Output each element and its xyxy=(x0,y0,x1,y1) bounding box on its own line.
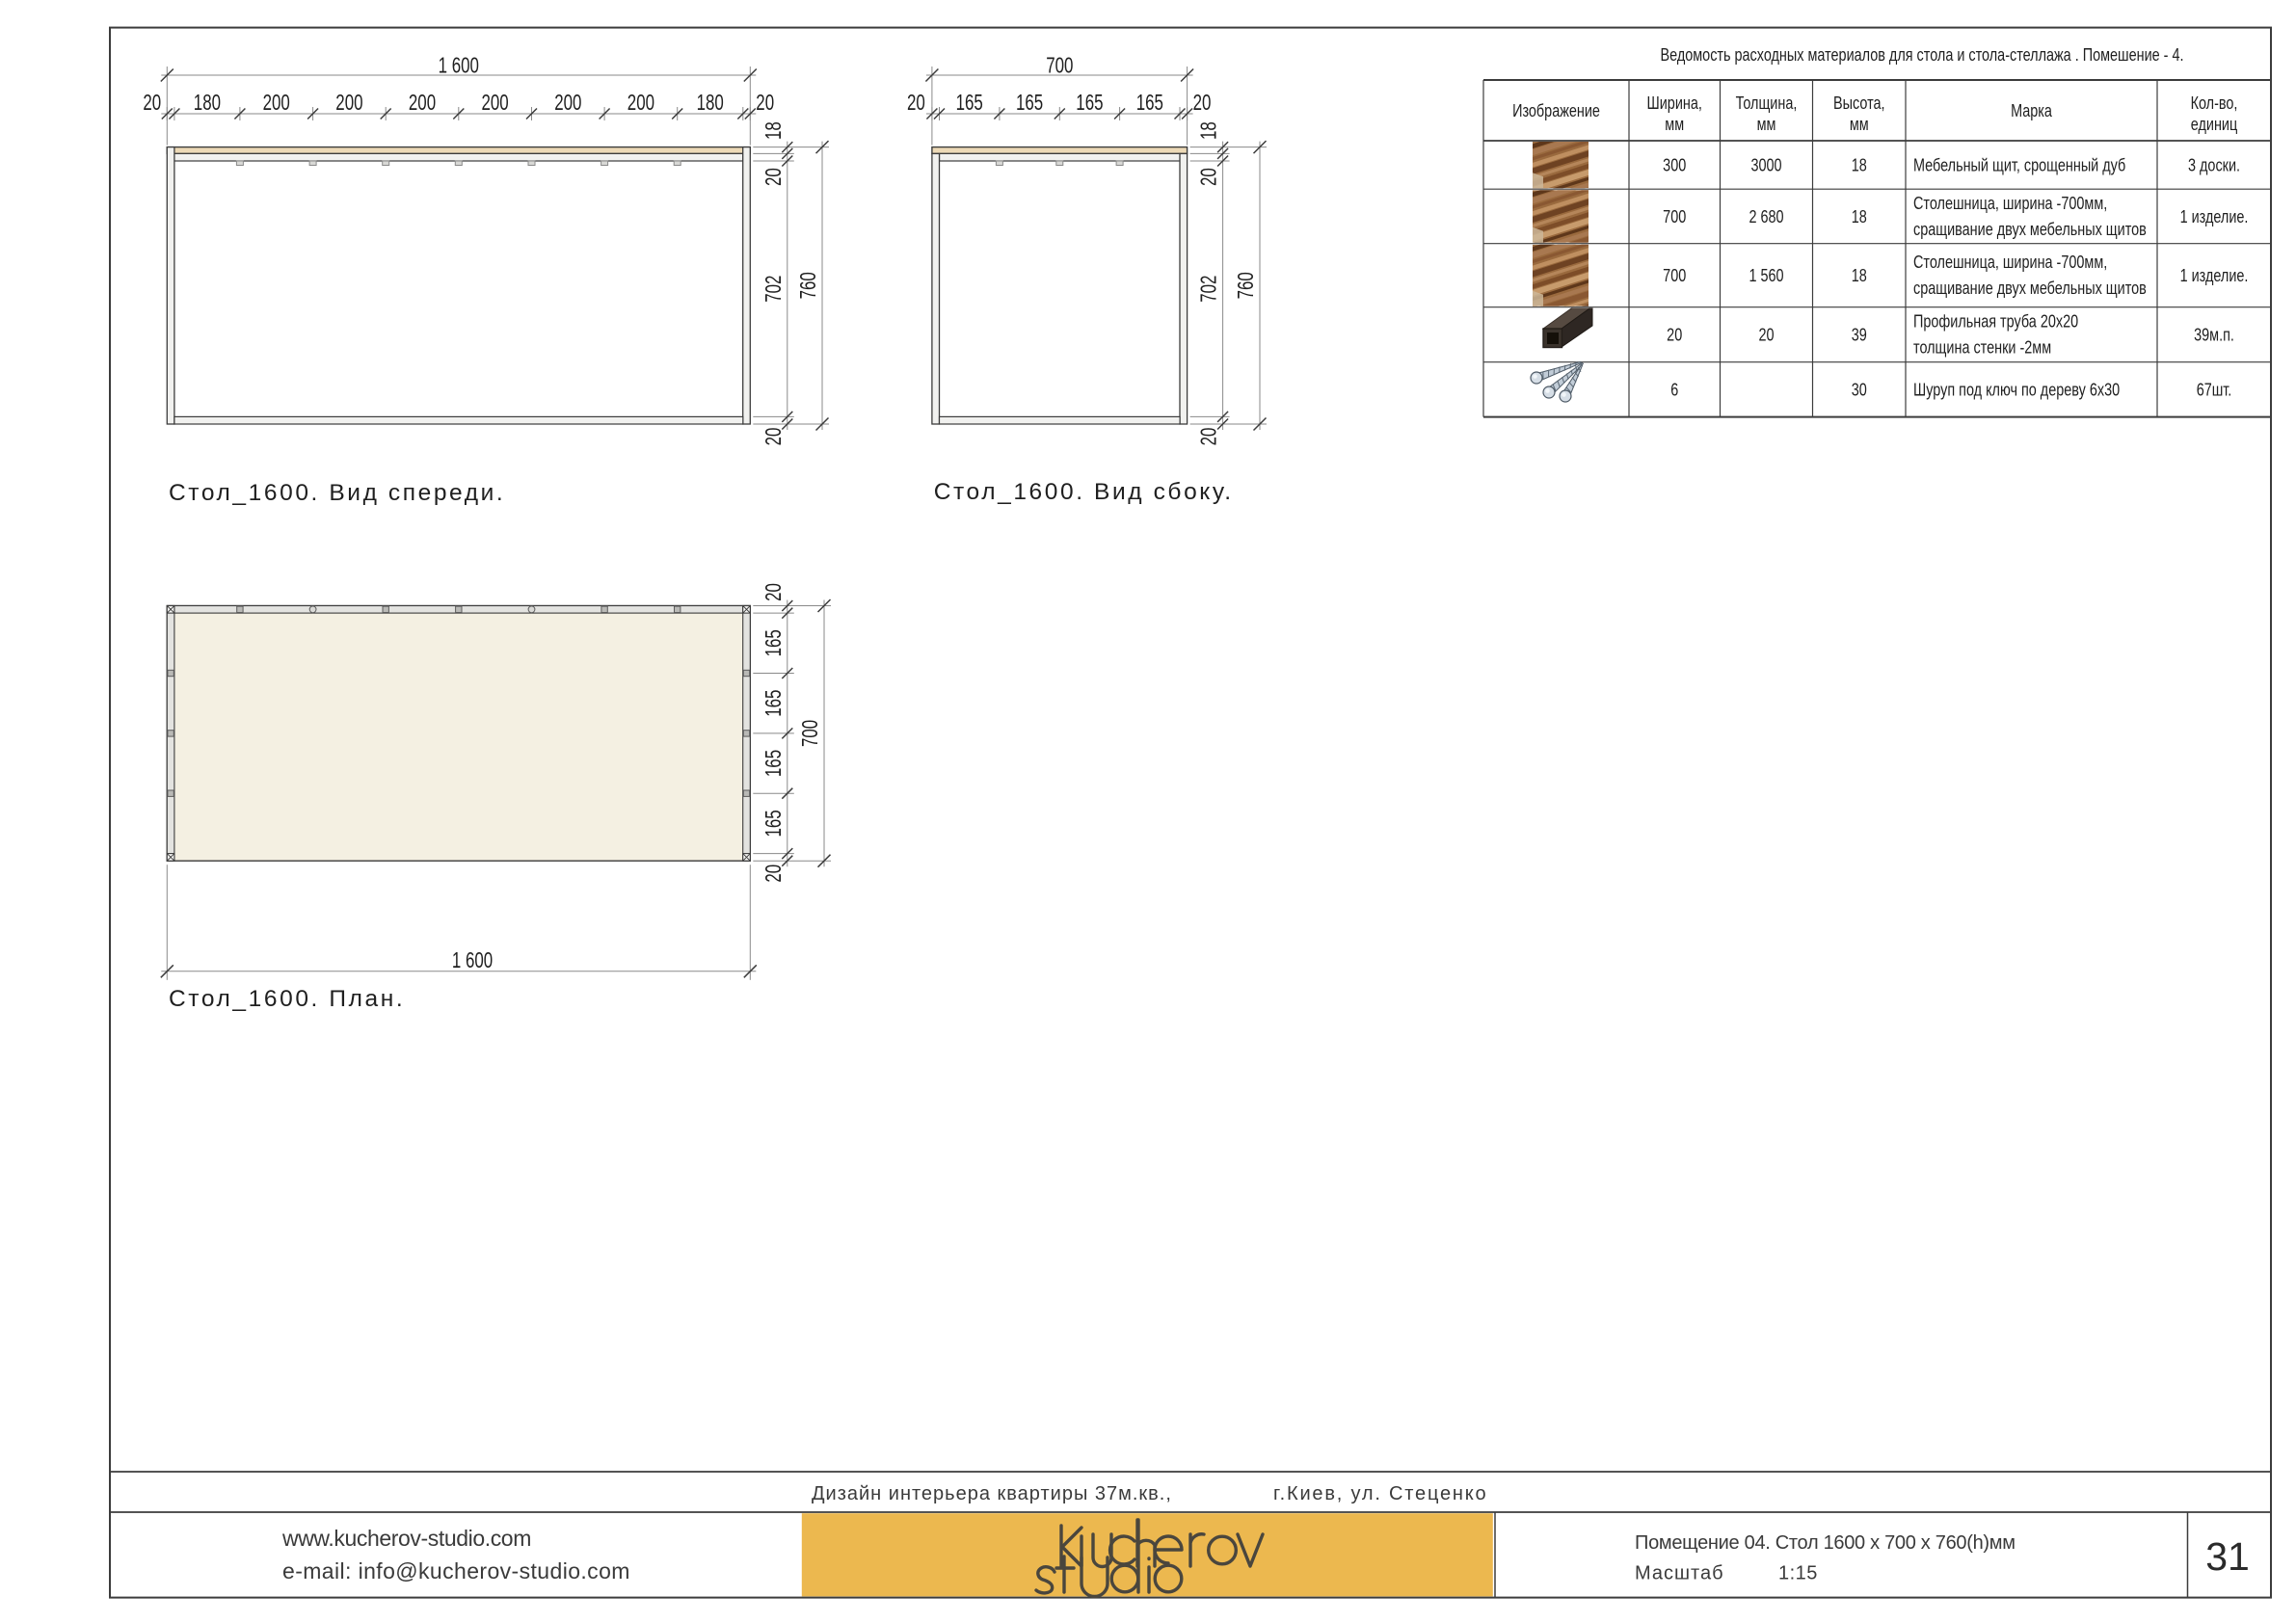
svg-text:760: 760 xyxy=(795,272,820,299)
svg-text:e-mail: info@kucherov-studio.c: e-mail: info@kucherov-studio.com xyxy=(282,1558,630,1583)
svg-text:165: 165 xyxy=(761,629,786,656)
svg-text:мм: мм xyxy=(1850,114,1869,134)
svg-text:700: 700 xyxy=(1046,53,1073,78)
svg-text:1 560: 1 560 xyxy=(1749,265,1783,285)
svg-text:18: 18 xyxy=(1852,206,1867,226)
svg-text:39м.п.: 39м.п. xyxy=(2194,325,2234,345)
svg-text:Ширина,: Ширина, xyxy=(1647,93,1702,113)
svg-text:Масштаб: Масштаб xyxy=(1635,1563,1724,1584)
svg-text:165: 165 xyxy=(761,750,786,777)
svg-text:Изображение: Изображение xyxy=(1512,100,1600,120)
svg-text:Стол_1600. Вид сбоку.: Стол_1600. Вид сбоку. xyxy=(934,479,1234,505)
svg-text:1 600: 1 600 xyxy=(439,53,479,78)
svg-text:200: 200 xyxy=(335,90,362,115)
svg-text:мм: мм xyxy=(1665,114,1684,134)
svg-text:165: 165 xyxy=(761,690,786,717)
svg-text:мм: мм xyxy=(1757,114,1776,134)
svg-text:760: 760 xyxy=(1233,272,1258,299)
svg-text:1:15: 1:15 xyxy=(1778,1563,1818,1584)
svg-text:18: 18 xyxy=(1852,265,1867,285)
svg-text:6: 6 xyxy=(1670,380,1678,400)
svg-text:Высота,: Высота, xyxy=(1833,93,1885,113)
svg-text:Стол_1600. План.: Стол_1600. План. xyxy=(169,986,405,1012)
svg-text:Толщина,: Толщина, xyxy=(1736,93,1798,113)
svg-text:Кол-во,: Кол-во, xyxy=(2191,93,2238,113)
svg-text:300: 300 xyxy=(1663,155,1686,175)
svg-text:165: 165 xyxy=(1016,90,1043,115)
svg-text:200: 200 xyxy=(409,90,436,115)
svg-text:200: 200 xyxy=(627,90,654,115)
svg-text:3000: 3000 xyxy=(1750,155,1781,175)
svg-text:Помещение 04. Стол 1600 x 700: Помещение 04. Стол 1600 x 700 x 760(h)мм xyxy=(1635,1532,2016,1554)
svg-text:20: 20 xyxy=(1193,90,1212,115)
svg-text:Стол_1600. Вид спереди.: Стол_1600. Вид спереди. xyxy=(169,480,505,506)
svg-text:20: 20 xyxy=(1196,168,1221,186)
svg-text:20: 20 xyxy=(1667,325,1682,345)
svg-text:1 изделие.: 1 изделие. xyxy=(2180,265,2249,285)
svg-text:www.kucherov-studio.com: www.kucherov-studio.com xyxy=(281,1526,531,1551)
svg-text:20: 20 xyxy=(761,428,786,446)
svg-text:700: 700 xyxy=(797,720,822,747)
svg-text:2 680: 2 680 xyxy=(1749,206,1783,226)
svg-text:20: 20 xyxy=(756,90,774,115)
svg-text:Шуруп под ключ по дереву 6х30: Шуруп под ключ по дереву 6х30 xyxy=(1913,380,2120,400)
svg-text:180: 180 xyxy=(194,90,221,115)
svg-text:сращивание двух мебельных щито: сращивание двух мебельных щитов xyxy=(1913,219,2147,239)
svg-text:20: 20 xyxy=(1196,428,1221,446)
svg-text:сращивание двух мебельных щито: сращивание двух мебельных щитов xyxy=(1913,278,2147,298)
svg-text:20: 20 xyxy=(761,583,786,601)
svg-text:18: 18 xyxy=(1852,155,1867,175)
svg-text:165: 165 xyxy=(1076,90,1103,115)
svg-text:толщина стенки -2мм: толщина стенки -2мм xyxy=(1913,337,2051,358)
svg-text:1 изделие.: 1 изделие. xyxy=(2180,206,2249,226)
svg-text:18: 18 xyxy=(761,121,786,140)
svg-text:700: 700 xyxy=(1663,265,1686,285)
svg-text:20: 20 xyxy=(1758,325,1774,345)
svg-text:20: 20 xyxy=(907,90,925,115)
svg-text:200: 200 xyxy=(481,90,508,115)
svg-text:1 600: 1 600 xyxy=(452,947,493,972)
svg-text:20: 20 xyxy=(761,865,786,883)
svg-text:702: 702 xyxy=(761,276,786,303)
svg-text:Дизайн интерьера квартиры 37м.: Дизайн интерьера квартиры 37м.кв., xyxy=(812,1483,1172,1504)
svg-text:700: 700 xyxy=(1663,206,1686,226)
svg-text:Профильная труба 20х20: Профильная труба 20х20 xyxy=(1913,311,2078,332)
svg-text:165: 165 xyxy=(956,90,983,115)
svg-text:200: 200 xyxy=(554,90,581,115)
svg-text:200: 200 xyxy=(263,90,290,115)
svg-text:Столешница, ширина -700мм,: Столешница, ширина -700мм, xyxy=(1913,193,2107,213)
svg-text:165: 165 xyxy=(1136,90,1163,115)
svg-text:30: 30 xyxy=(1852,380,1867,400)
svg-text:165: 165 xyxy=(761,810,786,837)
svg-text:180: 180 xyxy=(697,90,724,115)
svg-text:702: 702 xyxy=(1196,276,1221,303)
svg-text:Ведомость расходных материалов: Ведомость расходных материалов для стола… xyxy=(1660,44,2183,65)
svg-text:Мебельный щит, срощенный дуб: Мебельный щит, срощенный дуб xyxy=(1913,155,2125,175)
svg-text:67шт.: 67шт. xyxy=(2197,380,2232,400)
svg-text:31: 31 xyxy=(2205,1534,2250,1579)
svg-text:18: 18 xyxy=(1196,121,1221,140)
svg-text:20: 20 xyxy=(143,90,161,115)
svg-text:39: 39 xyxy=(1852,325,1867,345)
svg-text:20: 20 xyxy=(761,168,786,186)
svg-text:Столешница, ширина -700мм,: Столешница, ширина -700мм, xyxy=(1913,252,2107,272)
svg-text:г.Киев, ул. Стеценко: г.Киев, ул. Стеценко xyxy=(1273,1483,1487,1504)
svg-text:Марка: Марка xyxy=(2011,100,2053,120)
svg-text:3 доски.: 3 доски. xyxy=(2188,155,2240,175)
svg-text:единиц: единиц xyxy=(2191,114,2238,134)
